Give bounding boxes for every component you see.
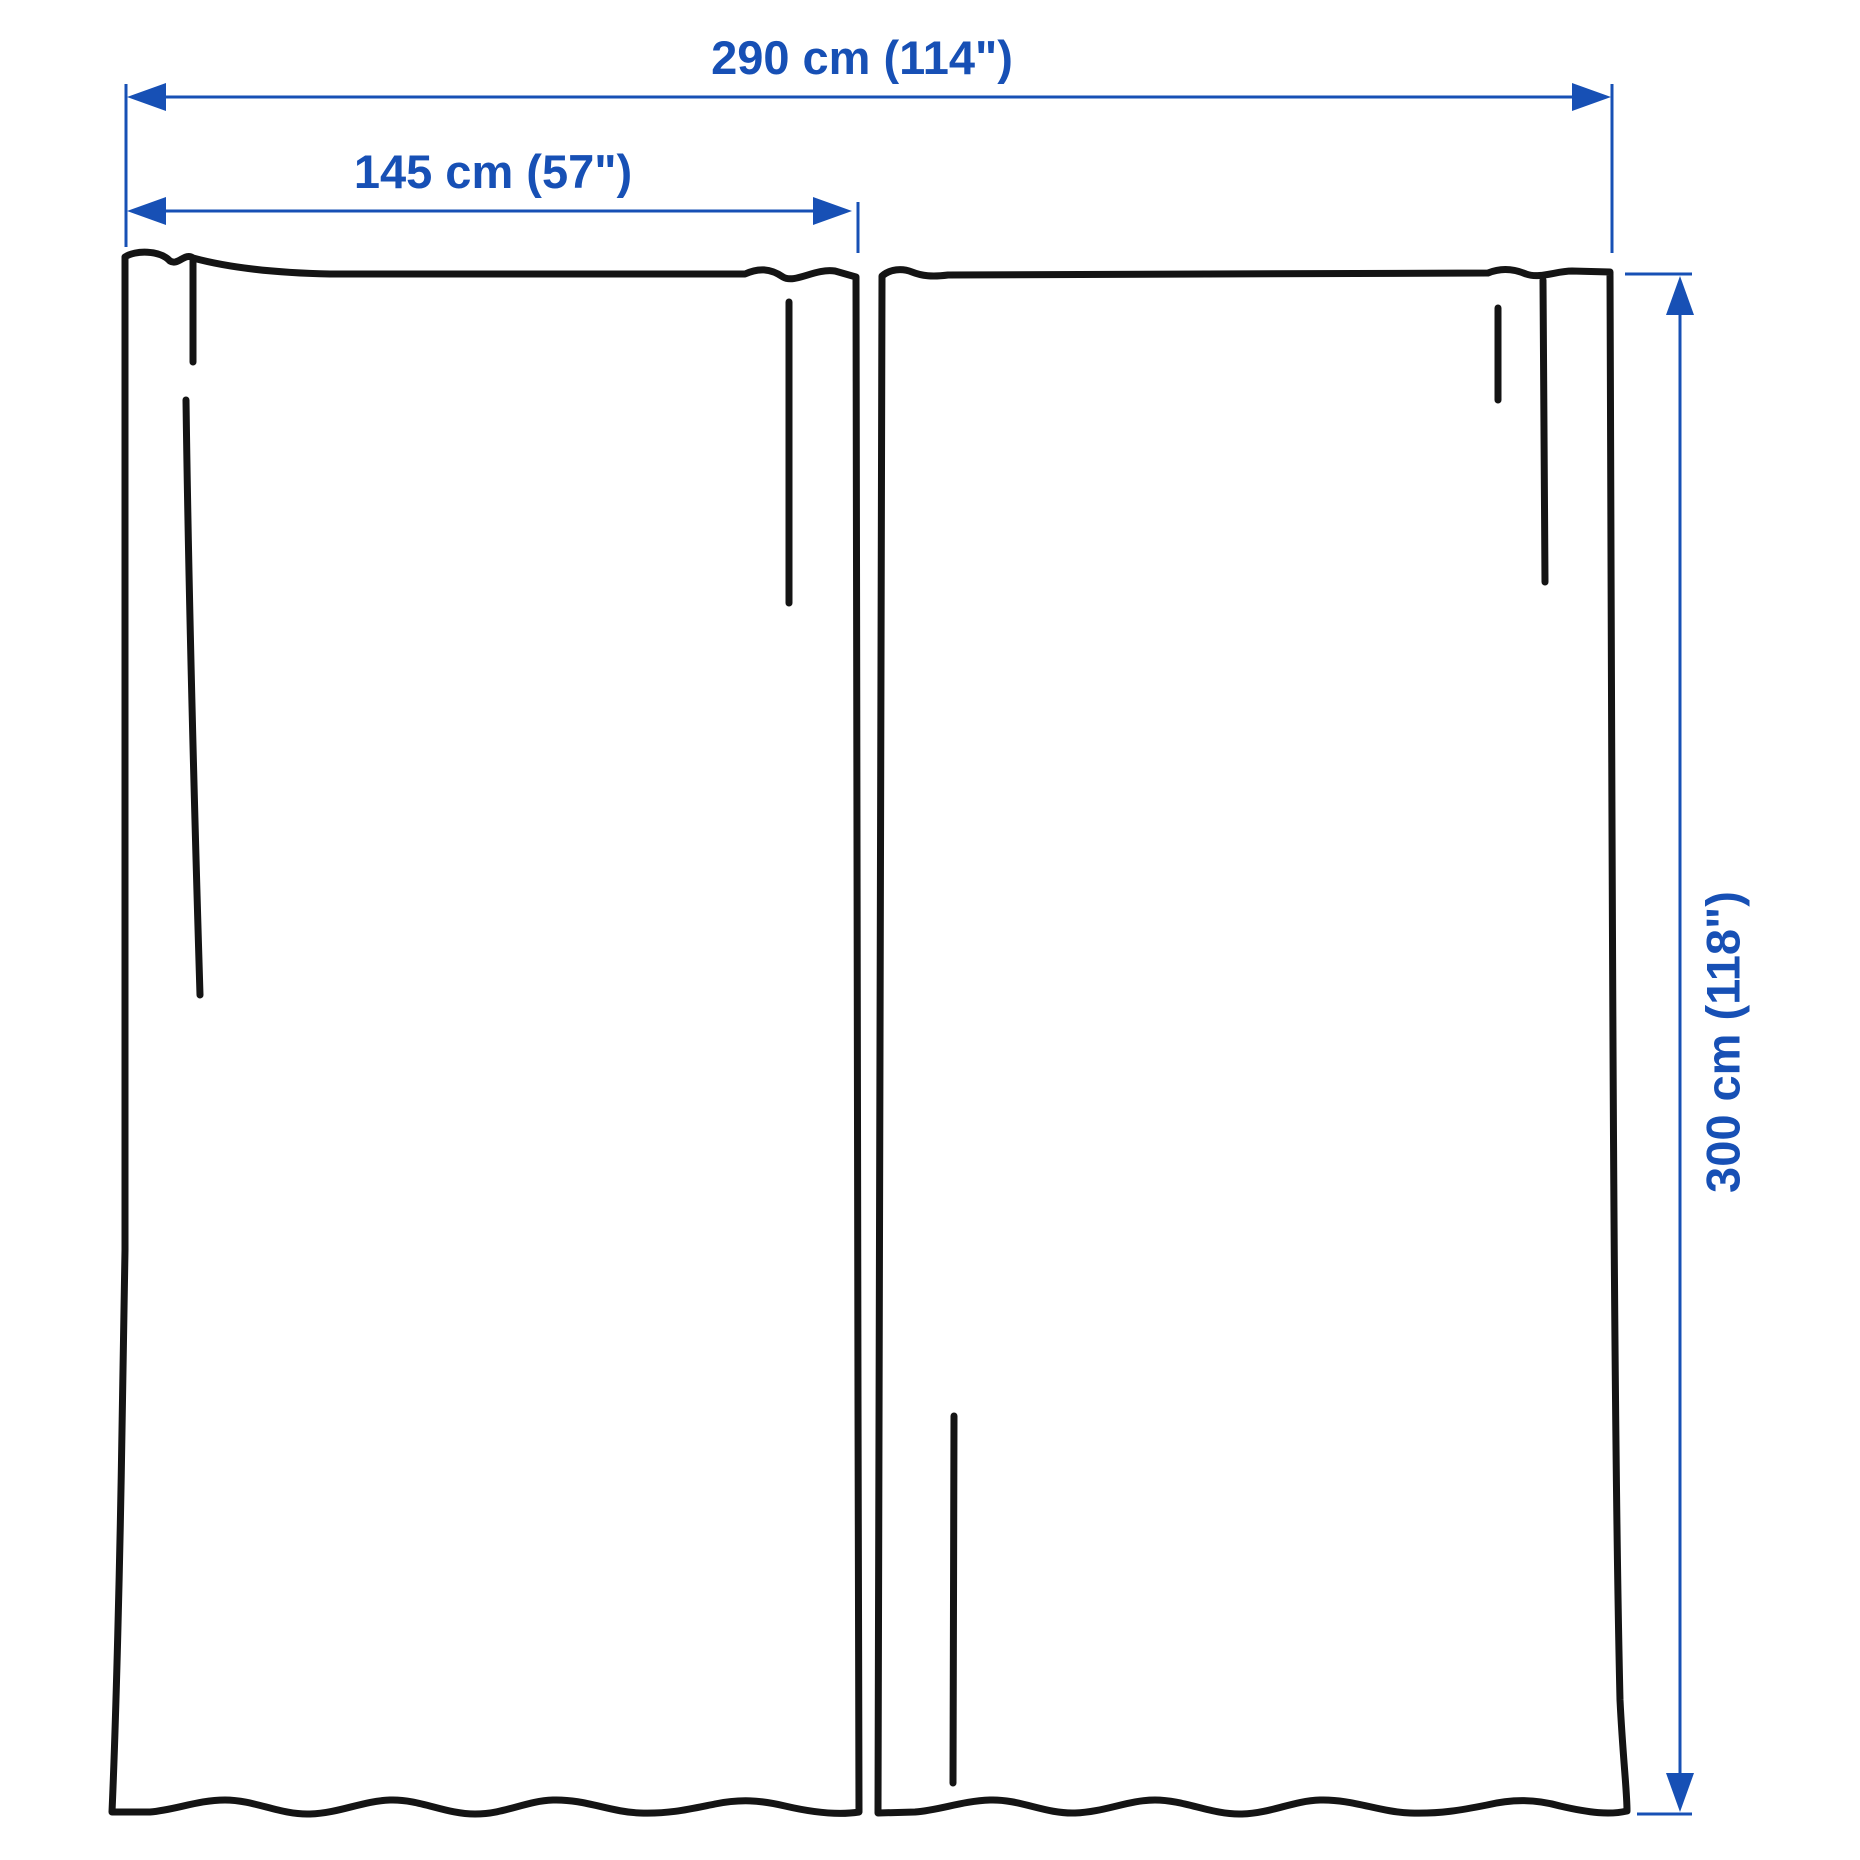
panel-width-label: 145 cm (57") [354,145,632,198]
arrow-up-icon [1666,276,1694,315]
panel-width-dimension: 145 cm (57") [127,145,858,253]
total-width-dimension: 290 cm (114") [126,31,1612,253]
fold-line [953,1416,954,1783]
curtain-dimension-diagram: 290 cm (114") 145 cm (57") 300 cm (118") [0,0,1860,1860]
total-width-label: 290 cm (114") [711,31,1013,84]
arrow-right-icon [813,197,852,225]
panel-height-dimension: 300 cm (118") [1625,274,1750,1814]
panel-height-label: 300 cm (118") [1697,891,1750,1193]
diagram-canvas: 290 cm (114") 145 cm (57") 300 cm (118") [0,0,1860,1860]
arrow-left-icon [127,197,166,225]
arrow-right-icon [1572,83,1611,111]
arrow-left-icon [127,83,166,111]
fold-line [1543,280,1545,582]
right-curtain-panel [878,269,1627,1814]
curtain-panels [112,252,1627,1814]
left-curtain-panel [112,252,859,1814]
arrow-down-icon [1666,1773,1694,1812]
